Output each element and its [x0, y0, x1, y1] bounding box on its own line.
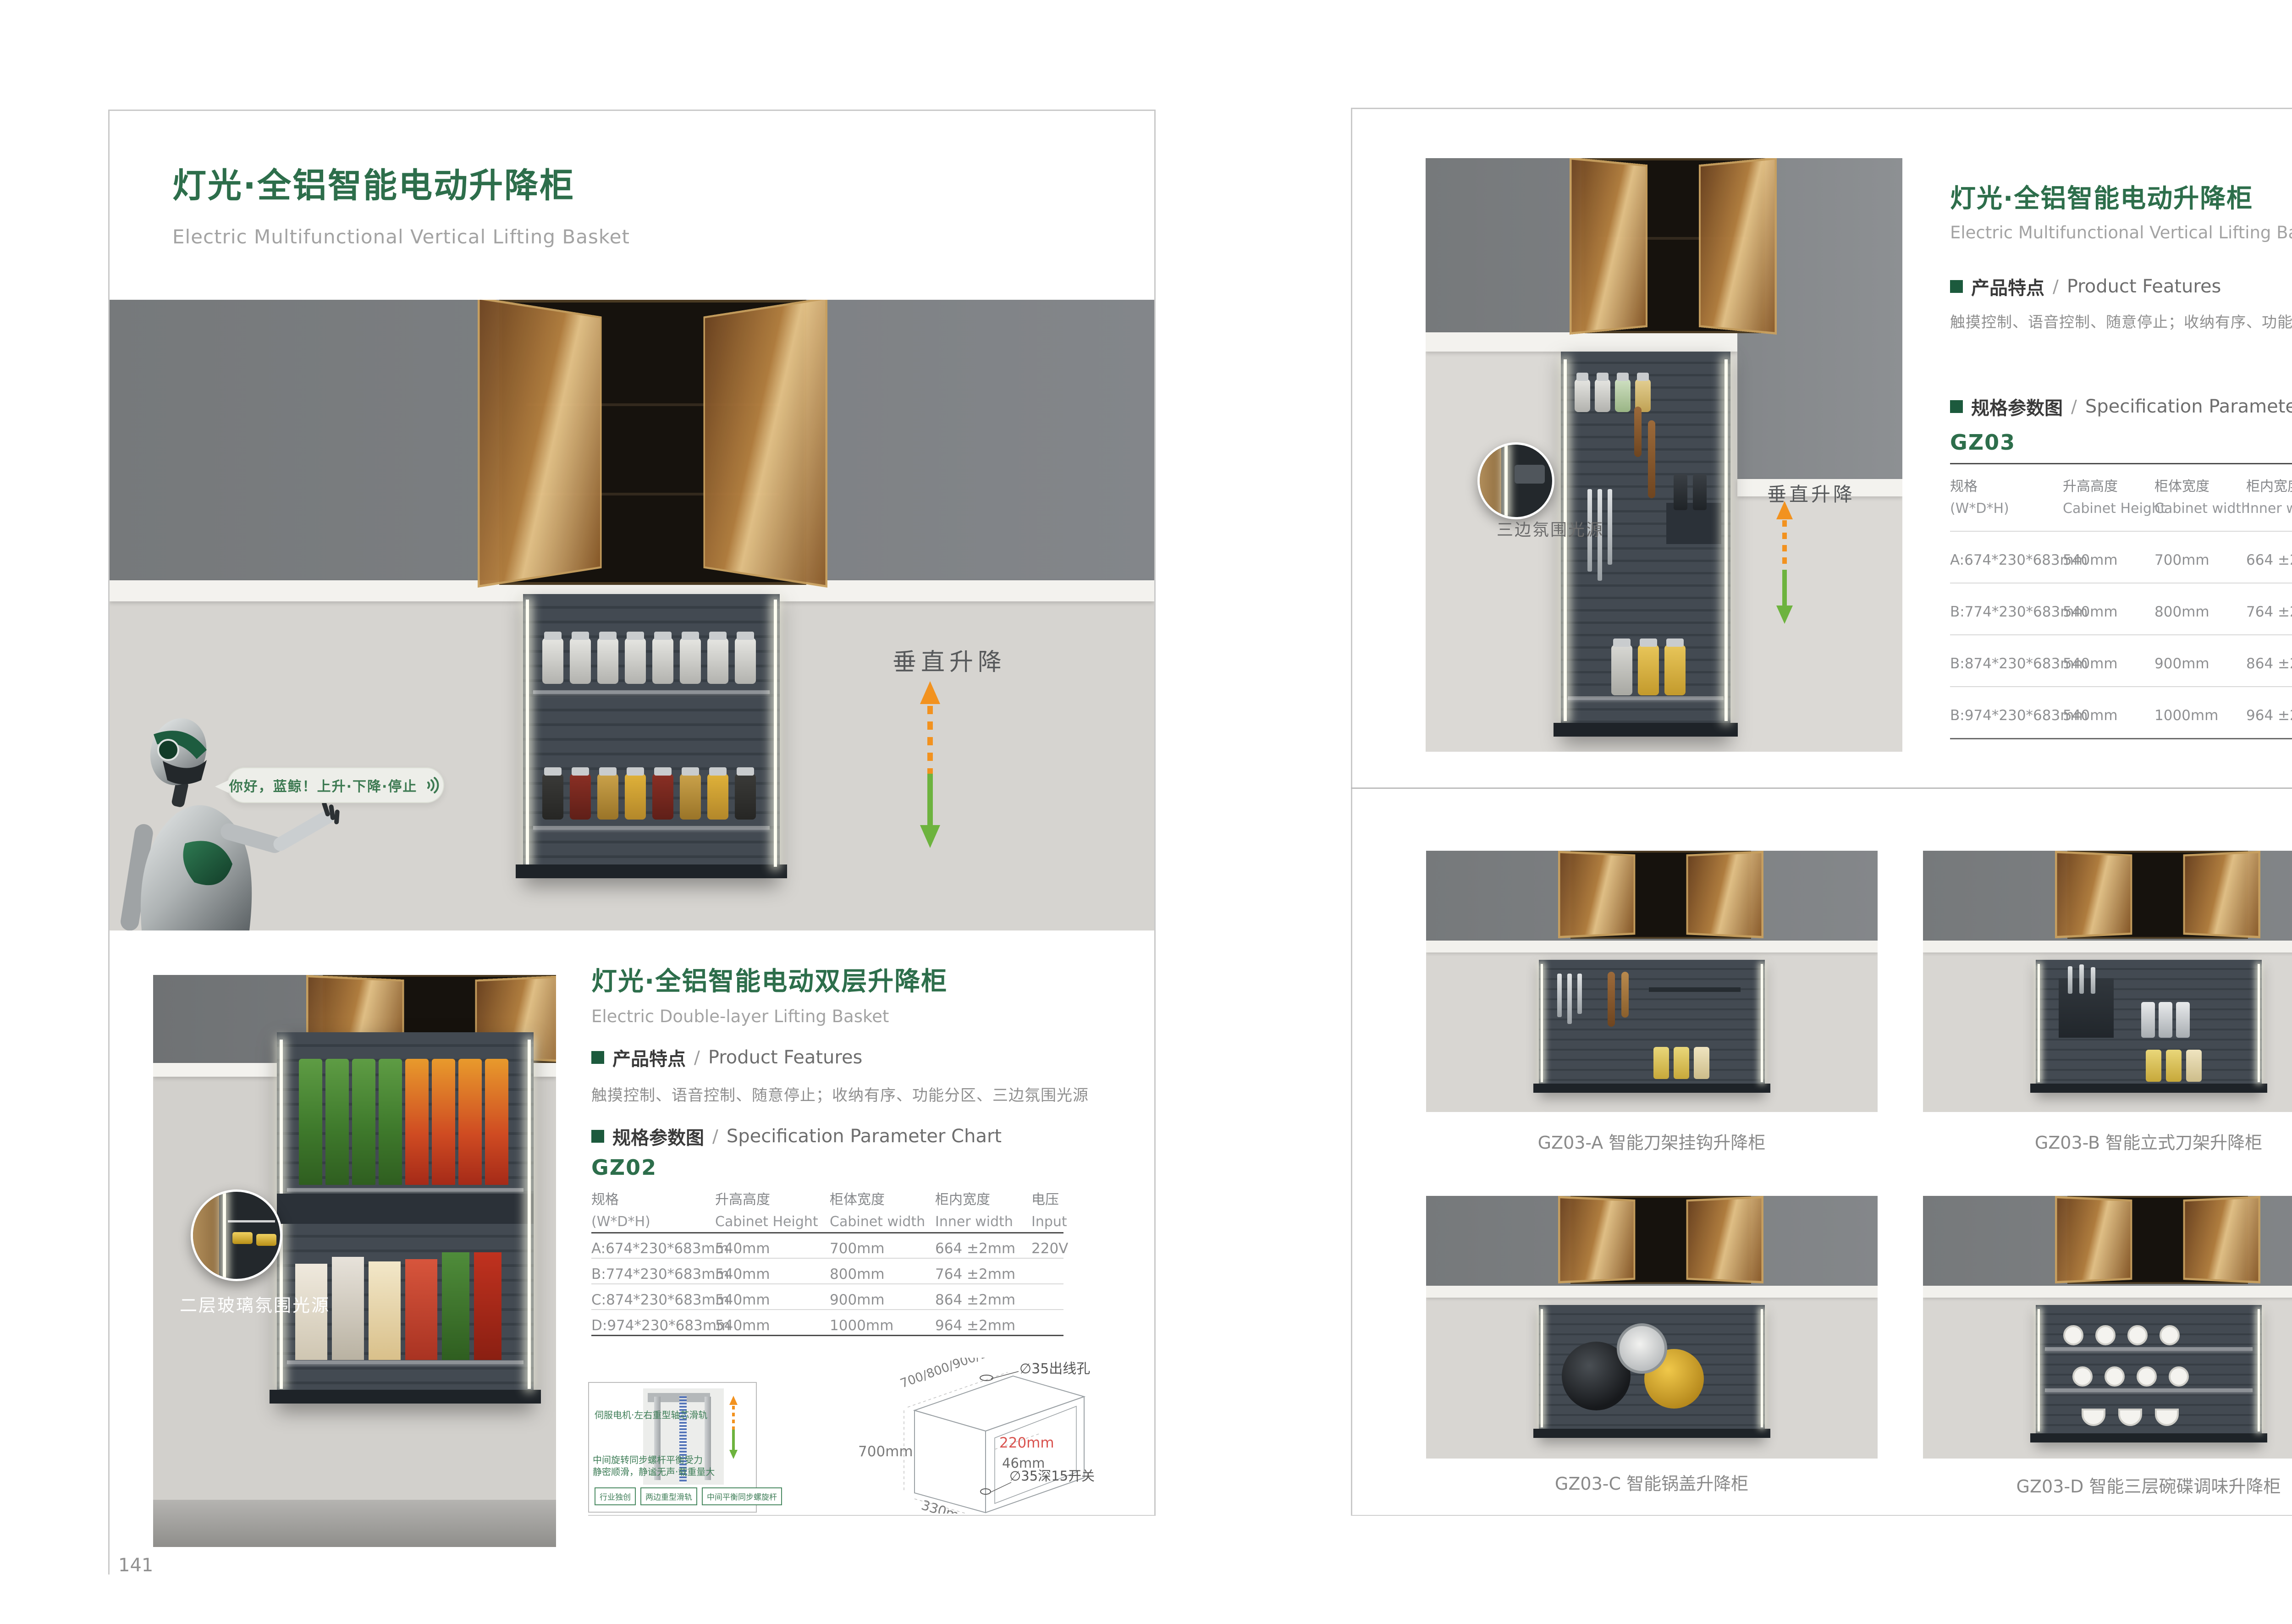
jar — [735, 638, 756, 684]
section-marker-icon — [1950, 280, 1963, 293]
cabinet-soffit — [1426, 1286, 1878, 1298]
hero-photo: 你好，蓝鲸！上升·下降·停止 垂直升降 — [110, 300, 1154, 930]
wood-panel — [193, 1192, 219, 1279]
screw-label-1: 中间旋转同步螺杆平衡受力 — [593, 1453, 703, 1466]
tag: 行业独创 — [595, 1487, 636, 1505]
right-page-divider — [1351, 787, 2292, 789]
section-marker-icon — [591, 1051, 604, 1064]
table-row: C:874*230*683mm 540mm 900mm 864 ±2mm — [591, 1283, 1063, 1309]
features-heading-en: Product Features — [2067, 276, 2221, 297]
cabinet-door-right — [2183, 851, 2260, 938]
jar — [570, 638, 591, 684]
countertop — [153, 1500, 556, 1547]
bronze-glass-cabinet — [499, 300, 806, 585]
double-layer-subtitle: Electric Double-layer Lifting Basket — [591, 1007, 889, 1026]
rack-base — [1533, 1429, 1770, 1438]
features-heading-cn: 产品特点 — [1971, 273, 2044, 300]
table-row: B:774*230*683mm 540mm 800mm 764 ±2mm — [1950, 583, 2292, 634]
steel-cup — [2159, 1002, 2172, 1038]
spatula — [1608, 972, 1615, 1027]
rack-base — [1554, 723, 1738, 737]
left-page-border-top — [108, 110, 1156, 111]
spec-heading-en: Specification Parameter Chart — [2085, 396, 2292, 417]
bronze-glass-cabinet — [1581, 158, 1765, 333]
double-layer-title: 灯光·全铝智能电动双层升降柜 — [591, 961, 948, 998]
cabinet-door-left — [1558, 851, 1635, 938]
jar — [1674, 1047, 1689, 1079]
col-header: 规格 — [591, 1188, 650, 1208]
carton — [325, 1059, 349, 1185]
box — [442, 1252, 469, 1360]
jar — [1611, 645, 1632, 695]
svg-text:330mm: 330mm — [920, 1497, 973, 1514]
photo-feature-label: 二层玻璃氛围光源 — [180, 1291, 330, 1316]
gz03-title: 灯光·全铝智能电动升降柜 — [1950, 178, 2253, 215]
shelf — [2045, 1347, 2253, 1351]
svg-text:220mm: 220mm — [999, 1435, 1054, 1451]
features-heading-cn: 产品特点 — [612, 1044, 686, 1071]
heading-slash: / — [2053, 276, 2059, 297]
col-header: 柜内宽度 — [2246, 475, 2292, 495]
col-header: 升高高度 — [2063, 475, 2166, 495]
spatula — [1634, 407, 1642, 457]
cabinet-door-right — [704, 300, 828, 588]
spice-jar-row-bottom — [542, 774, 756, 820]
svg-text:∅35出线孔: ∅35出线孔 — [1019, 1361, 1090, 1377]
rack-base — [270, 1390, 541, 1404]
spec-heading-en: Specification Parameter Chart — [727, 1126, 1002, 1147]
gallery-photo-gz03-b — [1923, 851, 2292, 1112]
jar — [680, 638, 701, 684]
heading-slash: / — [694, 1047, 700, 1068]
col-header-en: (W*D*H) — [1950, 501, 2009, 517]
cabinet-door-left — [1558, 1196, 1635, 1283]
box — [369, 1261, 401, 1360]
detail-callout-circle — [191, 1189, 282, 1281]
gz03-photo: 三边氛围光源 垂直升降 — [1426, 158, 1902, 752]
plate — [2105, 1366, 2125, 1387]
plate — [2160, 1325, 2180, 1345]
spec-heading: 规格参数图 / Specification Parameter Chart — [591, 1123, 1002, 1150]
feature-tags: 行业独创 两边重型滑轨 中间平衡同步螺旋杆 — [595, 1487, 782, 1505]
glass-line — [228, 1220, 275, 1222]
col-header-en: Inner width — [2246, 501, 2292, 517]
knife-block — [2059, 978, 2114, 1038]
jar — [1664, 645, 1686, 695]
photo-feature-label: 三边氛围光源 — [1497, 517, 1604, 540]
svg-text:700mm: 700mm — [858, 1443, 913, 1460]
table-row: A:674*230*683mm 540mm 700mm 664 ±2mm 220… — [591, 1232, 1063, 1258]
cabinet-soffit — [1923, 941, 2292, 952]
jar — [542, 638, 563, 684]
mini-up-arrow — [729, 1396, 738, 1405]
plate — [2169, 1366, 2189, 1387]
col-header: 电压 — [1031, 1188, 1067, 1208]
grinder — [1693, 474, 1707, 510]
table-row: B:874*230*683mm 540mm 900mm 864 ±2mm — [1950, 634, 2292, 686]
bronze-glass-cabinet — [1570, 851, 1751, 939]
screw-label-2: 静密顺滑，静谧无声·载重量大 — [593, 1464, 715, 1478]
knife — [2079, 964, 2084, 994]
double-layer-basket — [277, 1032, 534, 1404]
voice-speech-bubble: 你好，蓝鲸！上升·下降·停止 — [227, 767, 444, 803]
gallery-photo-gz03-c — [1426, 1196, 1878, 1459]
pot-lid — [1617, 1323, 1667, 1374]
jar — [1653, 1047, 1669, 1079]
jar — [597, 638, 618, 684]
left-page-subtitle: Electric Multifunctional Vertical Liftin… — [172, 226, 630, 248]
bronze-glass-cabinet — [2067, 851, 2248, 939]
gallery-caption: GZ03-C 智能锅盖升降柜 — [1555, 1470, 1748, 1495]
gz02-spec-table: 规格(W*D*H) 升高高度Cabinet Height 柜体宽度Cabinet… — [591, 1188, 1063, 1330]
down-arrow-icon — [920, 825, 940, 848]
cabinet-door-right — [2183, 1196, 2260, 1283]
rack-base — [2030, 1084, 2267, 1093]
box — [332, 1257, 364, 1360]
cabinet-soffit — [1923, 1286, 2292, 1298]
gz03-subtitle: Electric Multifunctional Vertical Liftin… — [1950, 223, 2292, 242]
knife — [1567, 974, 1572, 1024]
up-arrow-dashes — [1782, 520, 1787, 570]
svg-text:700/800/900/1000mm: 700/800/900/1000mm — [898, 1358, 1034, 1391]
speech-text: 你好，蓝鲸！上升·下降·停止 — [229, 775, 418, 795]
steel-cup — [2176, 1002, 2190, 1038]
mini-down-arrow — [729, 1450, 738, 1459]
left-page-title: 灯光·全铝智能电动升降柜 — [172, 158, 575, 207]
lifting-basket — [523, 594, 780, 878]
carton — [299, 1059, 322, 1185]
mini-down-shaft — [732, 1430, 735, 1450]
jar — [652, 638, 673, 684]
dimension-diagram: 700/800/900/1000mm ∅35出线孔 700mm 220mm 46… — [848, 1358, 1105, 1514]
jar — [652, 774, 673, 820]
bronze-glass-cabinet — [1570, 1196, 1751, 1284]
juice-carton-row — [299, 1059, 508, 1185]
rack-base — [1533, 1084, 1770, 1093]
table-row: B:774*230*683mm 540mm 800mm 764 ±2mm — [591, 1258, 1063, 1283]
jar — [1575, 379, 1590, 412]
carton — [485, 1059, 508, 1185]
jar — [570, 774, 591, 820]
hook-rail — [1649, 987, 1741, 992]
shelf — [2045, 1388, 2253, 1392]
col-header: 升高高度 — [715, 1188, 818, 1208]
wood-panel — [1480, 445, 1501, 517]
col-header-en: Cabinet Height — [715, 1214, 818, 1230]
jar — [1638, 645, 1659, 695]
table-row: D:974*230*683mm 540mm 1000mm 964 ±2mm — [591, 1309, 1063, 1335]
section-marker-icon — [591, 1130, 604, 1143]
glass-shelf — [1568, 696, 1724, 700]
jar — [1694, 1047, 1709, 1079]
features-text: 触摸控制、语音控制、随意停止；收纳有序、功能分区、三边氛围光源 — [1950, 310, 2292, 332]
right-footer-rule — [1351, 1515, 2292, 1516]
jar — [680, 774, 701, 820]
gallery-caption: GZ03-D 智能三层碗碟调味升降柜 — [2017, 1472, 2281, 1497]
left-page-border-right — [1154, 110, 1156, 1516]
col-header-en: (W*D*H) — [591, 1214, 650, 1230]
tag: 两边重型滑轨 — [640, 1487, 697, 1505]
knife — [1608, 489, 1612, 565]
cabinet-door-left — [1570, 158, 1647, 334]
gallery-photo-gz03-a — [1426, 851, 1878, 1112]
cabinet-door-right — [1699, 158, 1777, 334]
knife-hook-basket — [1539, 960, 1765, 1093]
features-heading: 产品特点 / Product Features — [591, 1044, 862, 1071]
carton — [458, 1059, 482, 1185]
section-marker-icon — [1950, 400, 1963, 413]
down-arrow-shaft — [927, 774, 933, 825]
jar — [707, 638, 728, 684]
bowl — [2155, 1409, 2179, 1426]
sound-wave-icon — [424, 776, 442, 794]
jar — [735, 774, 756, 820]
col-header-en: Inner width — [935, 1214, 1013, 1230]
pasta-jars — [1611, 645, 1686, 695]
table-row: A:674*230*683mm 540mm 700mm 664 ±2mm 220… — [1950, 531, 2292, 583]
tag: 中间平衡同步螺旋杆 — [702, 1487, 782, 1505]
cabinet-door-right — [1686, 851, 1763, 938]
clamp-detail — [1515, 465, 1545, 484]
jar — [597, 774, 618, 820]
spice-jar-row-top — [542, 638, 756, 684]
gz03-spec-table: 规格(W*D*H) 升高高度Cabinet Height 柜体宽度Cabinet… — [1950, 463, 2292, 738]
heading-slash: / — [2071, 396, 2077, 417]
gold-cap — [232, 1232, 253, 1244]
gallery-caption: GZ03-B 智能立式刀架升降柜 — [2035, 1129, 2262, 1154]
bowl — [2118, 1409, 2142, 1426]
model-code: GZ03 — [1950, 430, 2016, 455]
detail-callout-circle — [1477, 442, 1554, 519]
cabinet-door-left — [2055, 851, 2132, 938]
heading-slash: / — [712, 1126, 718, 1146]
upright-knife-basket — [2036, 960, 2262, 1093]
jar — [2146, 1050, 2161, 1082]
plate — [2072, 1366, 2093, 1387]
led-strip — [1504, 445, 1508, 517]
box — [474, 1252, 501, 1360]
gold-cap — [256, 1234, 276, 1246]
page-number-left: 141 — [118, 1555, 153, 1576]
spatula — [1648, 420, 1655, 498]
spatula — [1621, 972, 1629, 1018]
col-header: 柜内宽度 — [935, 1188, 1013, 1208]
glass-shelf — [287, 1188, 523, 1192]
spec-heading: 规格参数图 / Specification Parameter Chart — [1950, 393, 2292, 420]
jar — [707, 774, 728, 820]
right-page-border-top — [1351, 108, 2292, 109]
glass-shelf — [533, 690, 769, 694]
up-arrow-icon — [1776, 501, 1793, 519]
gallery-photo-gz03-d — [1923, 1196, 2292, 1459]
cabinet-door-left — [2055, 1196, 2132, 1283]
bronze-glass-cabinet — [2067, 1196, 2248, 1284]
features-heading: 产品特点 / Product Features — [1950, 273, 2221, 300]
multifunction-basket — [1561, 352, 1730, 737]
jar — [1615, 379, 1631, 412]
carton — [405, 1059, 429, 1185]
knife — [1577, 974, 1582, 1014]
up-arrow-icon — [920, 681, 940, 704]
right-page-border-left — [1351, 108, 1352, 1516]
mid-housing — [277, 1194, 534, 1224]
rack-base — [2030, 1433, 2267, 1442]
jar — [625, 774, 646, 820]
up-arrow-dashes — [927, 706, 933, 774]
knife — [2091, 967, 2095, 994]
led-strip — [223, 1192, 226, 1279]
jar — [542, 774, 563, 820]
features-text: 触摸控制、语音控制、随意停止；收纳有序、功能分区、三边氛围光源 — [591, 1083, 1089, 1105]
glass-shelf — [287, 1360, 523, 1364]
table-row: B:974*230*683mm 540mm 1000mm 964 ±2mm — [1950, 686, 2292, 738]
gallery-caption: GZ03-A 智能刀架挂钩升降柜 — [1538, 1129, 1766, 1154]
col-header: 柜体宽度 — [2154, 475, 2250, 495]
down-arrow-shaft — [1782, 570, 1787, 606]
pot-lid-basket — [1539, 1305, 1765, 1438]
cabinet-door-right — [1686, 1196, 1763, 1283]
double-layer-photo: 二层玻璃氛围光源 — [153, 975, 556, 1547]
plate — [2137, 1366, 2157, 1387]
vertical-lift-label: 垂直升降 — [893, 643, 1006, 677]
carton — [352, 1059, 375, 1185]
rail-label: 伺服电机·左右重型轴芯滑轨 — [595, 1408, 707, 1421]
jar — [625, 638, 646, 684]
features-heading-en: Product Features — [708, 1047, 863, 1068]
model-code: GZ02 — [591, 1155, 657, 1180]
mini-up-dashes — [732, 1406, 735, 1430]
down-arrow-icon — [1776, 606, 1793, 624]
catalog-spread: 灯光·全铝智能电动升降柜 Electric Multifunctional Ve… — [0, 0, 2292, 1624]
col-header-en: Cabinet width — [2154, 501, 2250, 517]
col-header-en: Cabinet Height — [2063, 501, 2166, 517]
jar — [1595, 379, 1610, 412]
col-header-en: Cabinet width — [830, 1214, 925, 1230]
col-header: 规格 — [1950, 475, 2009, 495]
glass-shelf — [533, 826, 769, 830]
col-header-en: Input — [1031, 1214, 1067, 1230]
box — [405, 1259, 437, 1360]
grinder — [1674, 474, 1687, 510]
col-header: 柜体宽度 — [830, 1188, 925, 1208]
jar — [2166, 1050, 2182, 1082]
spec-heading-cn: 规格参数图 — [1971, 393, 2063, 420]
plate — [2095, 1325, 2116, 1345]
cabinet-door-left — [478, 300, 602, 588]
dish-rack-basket — [2036, 1305, 2262, 1442]
left-footer-rule — [588, 1515, 1155, 1516]
robot-illustration — [110, 706, 348, 930]
bowl — [2082, 1409, 2105, 1426]
jar — [2186, 1050, 2202, 1082]
cabinet-soffit — [1426, 941, 1878, 952]
steel-cup — [2141, 1002, 2155, 1038]
knife — [2068, 966, 2072, 994]
knife — [1557, 974, 1562, 1017]
carton — [432, 1059, 455, 1185]
svg-text:∅35深15开关: ∅35深15开关 — [1009, 1468, 1095, 1484]
cabinet-soffit — [1426, 332, 1737, 352]
plate — [2063, 1325, 2083, 1345]
spec-heading-cn: 规格参数图 — [612, 1123, 704, 1150]
plate — [2127, 1325, 2148, 1345]
rack-base — [516, 864, 787, 878]
carton — [379, 1059, 402, 1185]
mechanism-diagram-box: 伺服电机·左右重型轴芯滑轨 中间旋转同步螺杆平衡受力 静密顺滑，静谧无声·载重量… — [588, 1382, 757, 1513]
